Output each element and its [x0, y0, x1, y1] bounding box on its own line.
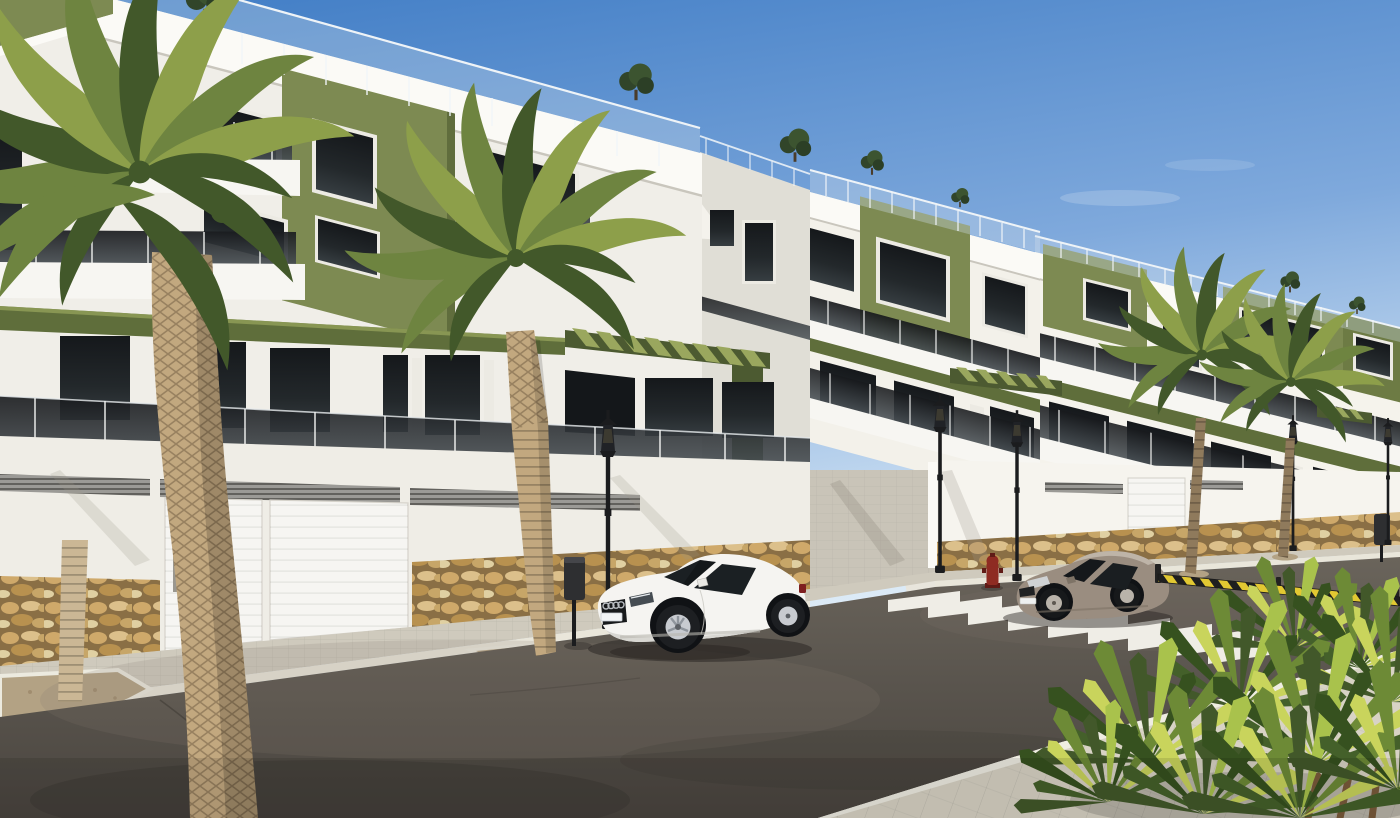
- alloy-rim: [1120, 589, 1134, 603]
- cloud-wisp: [1060, 190, 1180, 206]
- license-plate: [601, 613, 622, 621]
- window-glass: [745, 223, 773, 281]
- license-plate: [1020, 598, 1036, 604]
- garage-door-right: [1128, 478, 1185, 531]
- driveway-pier: [928, 462, 937, 568]
- side-mirror: [697, 578, 708, 587]
- hydrant-cap: [990, 553, 995, 557]
- bin-pole: [572, 598, 576, 646]
- render-canvas: [0, 0, 1400, 818]
- hub: [1052, 601, 1056, 605]
- hydrant-nozzle: [982, 568, 986, 573]
- garage-door-b: [270, 500, 408, 640]
- bin-body: [564, 557, 585, 600]
- vent-louver: [1045, 482, 1123, 494]
- tail-light: [799, 584, 806, 593]
- hub: [786, 614, 791, 619]
- wing-window: [710, 210, 734, 246]
- bottom-vignette: [0, 758, 1400, 818]
- scene-render: [0, 0, 1400, 818]
- hub: [675, 624, 681, 630]
- hydrant-nozzle: [999, 568, 1003, 573]
- bin-pole: [1380, 544, 1383, 562]
- bin-lip: [564, 557, 585, 563]
- cloud-wisp: [1165, 159, 1255, 171]
- bin-shadow: [564, 642, 592, 650]
